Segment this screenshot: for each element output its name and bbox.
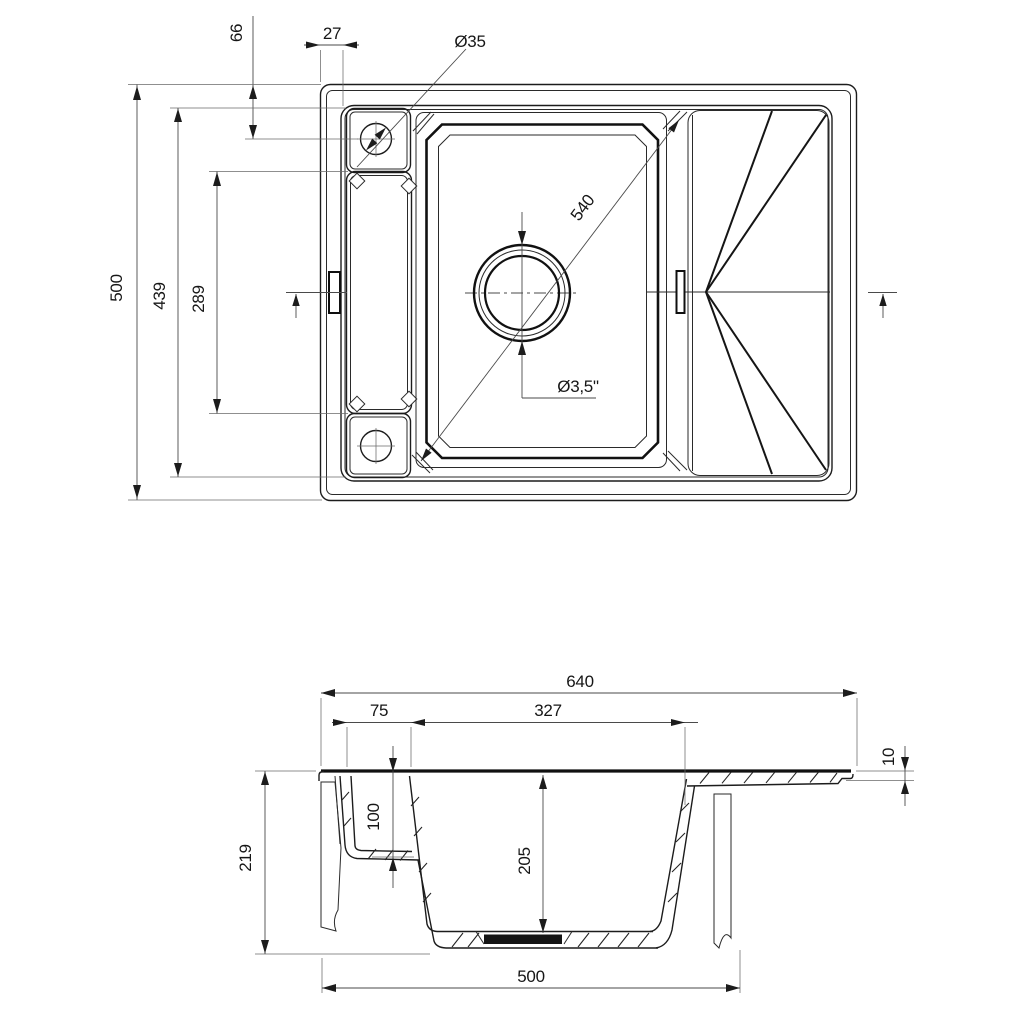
drain-recess (484, 935, 562, 945)
dim-label-66: 66 (227, 24, 246, 42)
dim-label-640: 640 (566, 672, 593, 691)
dim-label-o35: Ø35 (454, 32, 485, 51)
dim-label-100: 100 (364, 803, 383, 830)
dim-label-75: 75 (370, 701, 388, 720)
dim-label-289: 289 (189, 285, 208, 312)
dim-label-drain: Ø3,5" (557, 377, 599, 396)
dim-label-219: 219 (236, 844, 255, 871)
dim-label-205: 205 (515, 847, 534, 874)
dim-label-327: 327 (534, 701, 561, 720)
dim-label-439: 439 (150, 282, 169, 309)
dim-label-500-bottom: 500 (517, 967, 544, 986)
dim-label-500-top: 500 (107, 274, 126, 301)
page-background (0, 0, 1024, 1024)
clip-right (677, 271, 685, 313)
sink-technical-drawing: 66 27 Ø35 540 Ø3,5" (0, 0, 1024, 1024)
dim-label-10: 10 (879, 748, 898, 766)
dim-label-27: 27 (323, 24, 341, 43)
